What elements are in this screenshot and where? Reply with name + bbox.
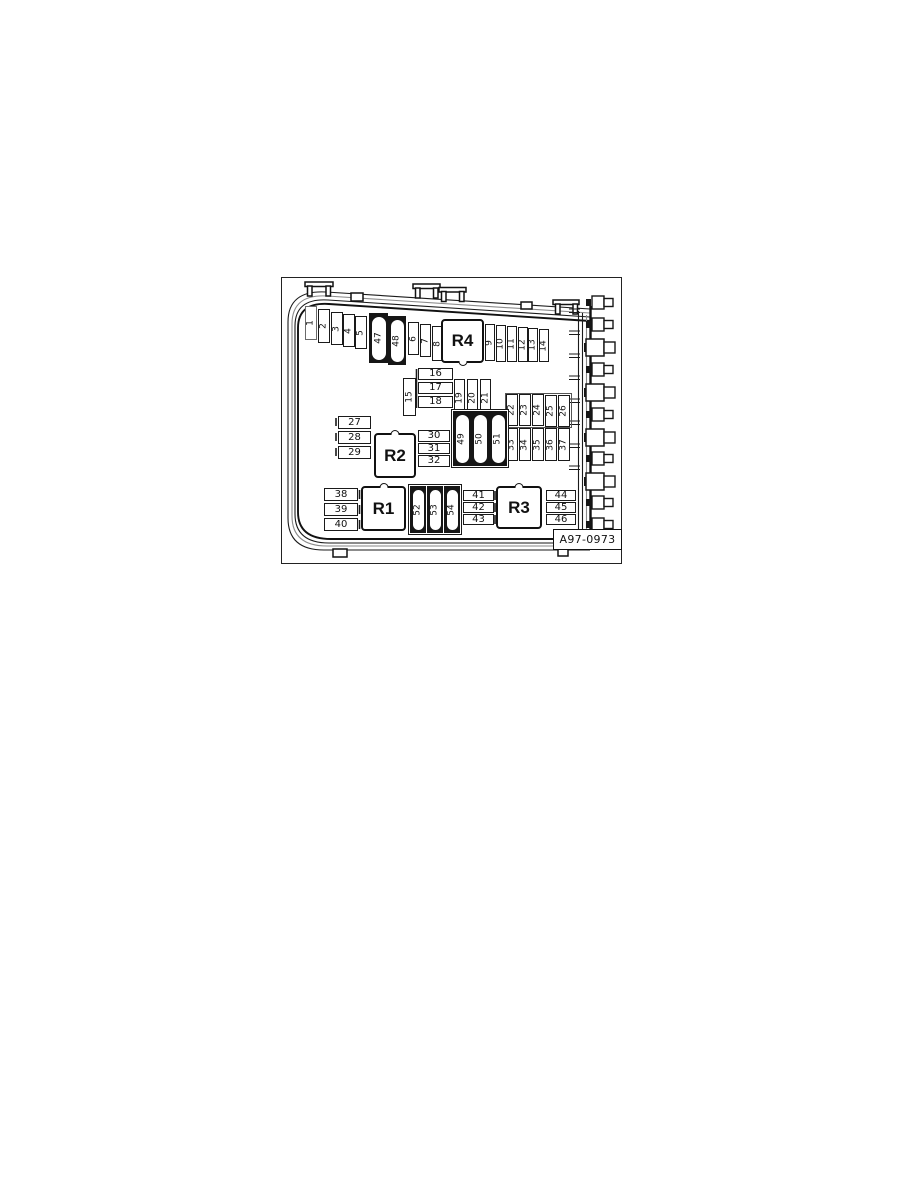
fuse-14: 14 xyxy=(539,329,549,362)
fuse-4-label: 4 xyxy=(345,328,354,334)
fuse-45: 45 xyxy=(546,502,576,513)
relay-r1-label: R1 xyxy=(373,499,395,519)
maxi-fuse-48: 48 xyxy=(388,316,406,365)
fuse-25: 25 xyxy=(545,395,557,427)
relay-r3-pin-bump xyxy=(515,483,524,488)
fuse-19-label: 19 xyxy=(455,392,464,403)
fuse-28: 28 xyxy=(338,431,371,444)
figure-code-label: A97-0973 xyxy=(553,529,622,550)
fuse-34-label: 34 xyxy=(521,439,530,450)
maxi-fuse-51: 51 xyxy=(489,411,507,466)
fuse-15: 15 xyxy=(403,378,416,416)
fuse-17: 17 xyxy=(418,382,453,394)
fuse-13: 13 xyxy=(528,328,538,362)
fuse-2: 2 xyxy=(318,309,330,343)
fuse-26-label: 26 xyxy=(560,405,569,416)
figure-frame: 1 2 3 4 5 47 48 6 7 8 R4 9 10 11 12 13 1… xyxy=(281,277,622,564)
fuse-3: 3 xyxy=(331,312,343,345)
fuse-24: 24 xyxy=(532,394,544,426)
fuse-32: 32 xyxy=(418,455,450,467)
fuse-30: 30 xyxy=(418,430,450,442)
maxi-fuse-47-label: 47 xyxy=(374,332,383,343)
fuse-29: 29 xyxy=(338,446,371,459)
maxi-fuse-48-label: 48 xyxy=(393,335,402,346)
fuse-20-label: 20 xyxy=(468,392,477,403)
fuse-6-label: 6 xyxy=(409,336,418,342)
relay-r4: R4 xyxy=(441,319,484,363)
maxi-fuse-47: 47 xyxy=(369,313,388,363)
fuse-16: 16 xyxy=(418,368,453,380)
relay-r1-pin-bump xyxy=(379,483,388,488)
fuse-10-label: 10 xyxy=(497,338,506,349)
fuse-34: 34 xyxy=(519,428,531,461)
fuse-7-label: 7 xyxy=(421,338,430,344)
maxi-fuse-50: 50 xyxy=(471,411,489,466)
maxi-fuse-52: 52 xyxy=(410,486,426,533)
fuse-9: 9 xyxy=(485,324,495,361)
maxi-fuse-50-label: 50 xyxy=(476,433,485,444)
relay-r2-pin-bump xyxy=(391,430,400,435)
fuse-41: 41 xyxy=(463,490,494,501)
manual-page: { "diagram": { "code": "A97-0973", "line… xyxy=(0,0,918,1188)
relay-r1: R1 xyxy=(361,486,406,531)
fuse-7: 7 xyxy=(420,324,431,357)
fuse-9-label: 9 xyxy=(486,340,495,346)
fuse-6: 6 xyxy=(408,322,419,355)
fuse-46: 46 xyxy=(546,514,576,525)
relay-r3-label: R3 xyxy=(508,498,530,518)
fuse-43: 43 xyxy=(463,514,494,525)
fuse-15-label: 15 xyxy=(405,391,414,402)
fuse-23-label: 23 xyxy=(521,404,530,415)
fuse-27: 27 xyxy=(338,416,371,429)
figure-code-text: A97-0973 xyxy=(560,533,616,546)
relay-r3: R3 xyxy=(496,486,542,529)
fuse-2-label: 2 xyxy=(320,323,329,329)
fuse-4: 4 xyxy=(343,314,355,347)
maxi-fuse-53: 53 xyxy=(427,486,443,533)
fuse-24-label: 24 xyxy=(534,404,543,415)
fuse-21-label: 21 xyxy=(481,392,490,403)
fuse-36-label: 36 xyxy=(547,439,556,450)
fuse-11: 11 xyxy=(507,326,517,362)
fuse-1-label: 1 xyxy=(307,320,316,326)
fuse-1: 1 xyxy=(305,306,317,340)
fuse-42: 42 xyxy=(463,502,494,513)
fuse-36: 36 xyxy=(545,428,557,461)
fuse-31: 31 xyxy=(418,443,450,454)
maxi-fuse-49: 49 xyxy=(453,411,471,466)
fuse-37-label: 37 xyxy=(560,439,569,450)
fuse-13-label: 13 xyxy=(529,339,538,350)
fuse-35-label: 35 xyxy=(534,439,543,450)
fuse-26: 26 xyxy=(558,395,570,427)
fuse-14-label: 14 xyxy=(540,340,549,351)
fuse-38: 38 xyxy=(324,488,358,501)
fuse-37: 37 xyxy=(558,428,570,461)
fuse-12-label: 12 xyxy=(519,339,528,350)
relay-r2-label: R2 xyxy=(384,446,406,466)
fuse-39: 39 xyxy=(324,503,358,516)
fuse-12: 12 xyxy=(518,327,528,362)
fuse-44: 44 xyxy=(546,490,576,501)
fuse-18: 18 xyxy=(418,396,453,408)
maxi-fuse-52-label: 52 xyxy=(414,504,423,515)
fuse-10: 10 xyxy=(496,325,506,362)
maxi-fuse-54: 54 xyxy=(444,486,460,533)
fuse-5: 5 xyxy=(355,316,367,349)
fuse-35: 35 xyxy=(532,428,544,461)
fuse-5-label: 5 xyxy=(357,330,366,336)
maxi-fuse-53-label: 53 xyxy=(431,504,440,515)
fuse-25-label: 25 xyxy=(547,405,556,416)
relay-r4-label: R4 xyxy=(452,331,474,351)
maxi-fuse-49-label: 49 xyxy=(458,433,467,444)
maxi-fuse-51-label: 51 xyxy=(494,433,503,444)
fuse-3-label: 3 xyxy=(333,326,342,332)
fuse-11-label: 11 xyxy=(508,338,517,349)
maxi-fuse-54-label: 54 xyxy=(448,504,457,515)
relay-r2: R2 xyxy=(374,433,416,478)
fuse-23: 23 xyxy=(519,394,531,426)
fuse-40: 40 xyxy=(324,518,358,531)
